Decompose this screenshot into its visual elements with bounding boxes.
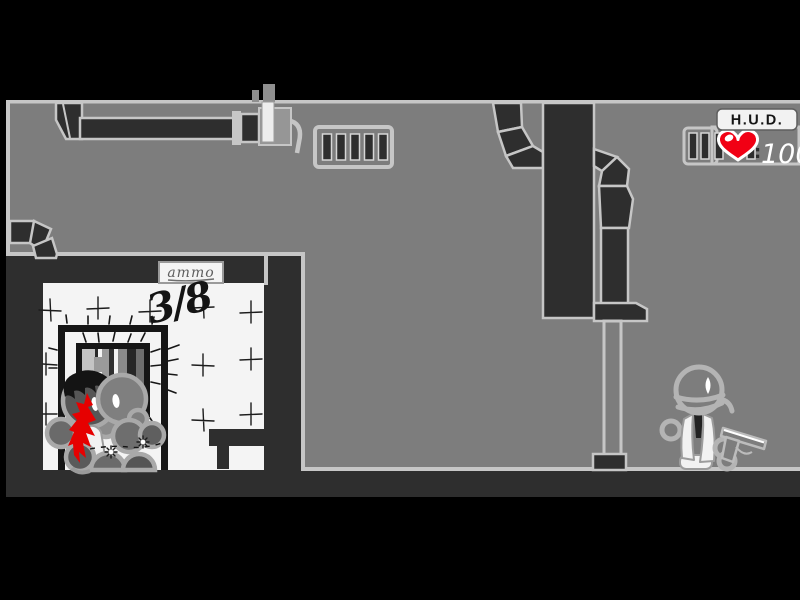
duct-flange <box>232 111 241 145</box>
duct-taper <box>599 186 633 228</box>
room-block-seam <box>264 256 268 285</box>
grill-slot <box>323 134 332 160</box>
roof-pipe <box>252 90 259 102</box>
hud-title: H.U.D. <box>731 113 784 129</box>
ceiling-line <box>6 100 800 104</box>
roof-pipe <box>263 84 275 102</box>
character-coat-left <box>681 414 694 460</box>
grill-slot <box>337 134 346 160</box>
grill-slot <box>379 134 388 160</box>
character-arm <box>662 421 680 439</box>
duct-coupling <box>241 114 259 142</box>
window-plate <box>94 357 107 372</box>
cell-lintel <box>58 325 166 332</box>
cell-right-post <box>161 325 168 470</box>
duct-horizontal <box>80 118 235 139</box>
hud-health-value: 100 <box>761 139 800 170</box>
ammo-slot <box>701 133 709 159</box>
floor-strip <box>305 471 800 497</box>
duct-narrow <box>601 228 628 304</box>
fly <box>109 450 114 455</box>
support-column <box>543 103 594 318</box>
ammo-slot <box>689 133 697 159</box>
room-block-right-edge <box>301 256 305 471</box>
game-viewport[interactable]: ammo 3/8 <box>0 0 800 600</box>
grill-slot <box>365 134 374 160</box>
bench-leg <box>217 446 229 469</box>
bench-top <box>209 429 268 446</box>
pipe-base <box>593 454 626 470</box>
white-pipe <box>262 102 274 142</box>
pile-dome <box>123 454 155 470</box>
drain-pipe <box>604 321 621 456</box>
fly <box>141 440 146 445</box>
pipe-bracket <box>594 303 647 321</box>
game-scene[interactable]: ammo 3/8 <box>0 0 800 600</box>
character-coat-right <box>700 414 715 462</box>
grill-slot <box>351 134 360 160</box>
